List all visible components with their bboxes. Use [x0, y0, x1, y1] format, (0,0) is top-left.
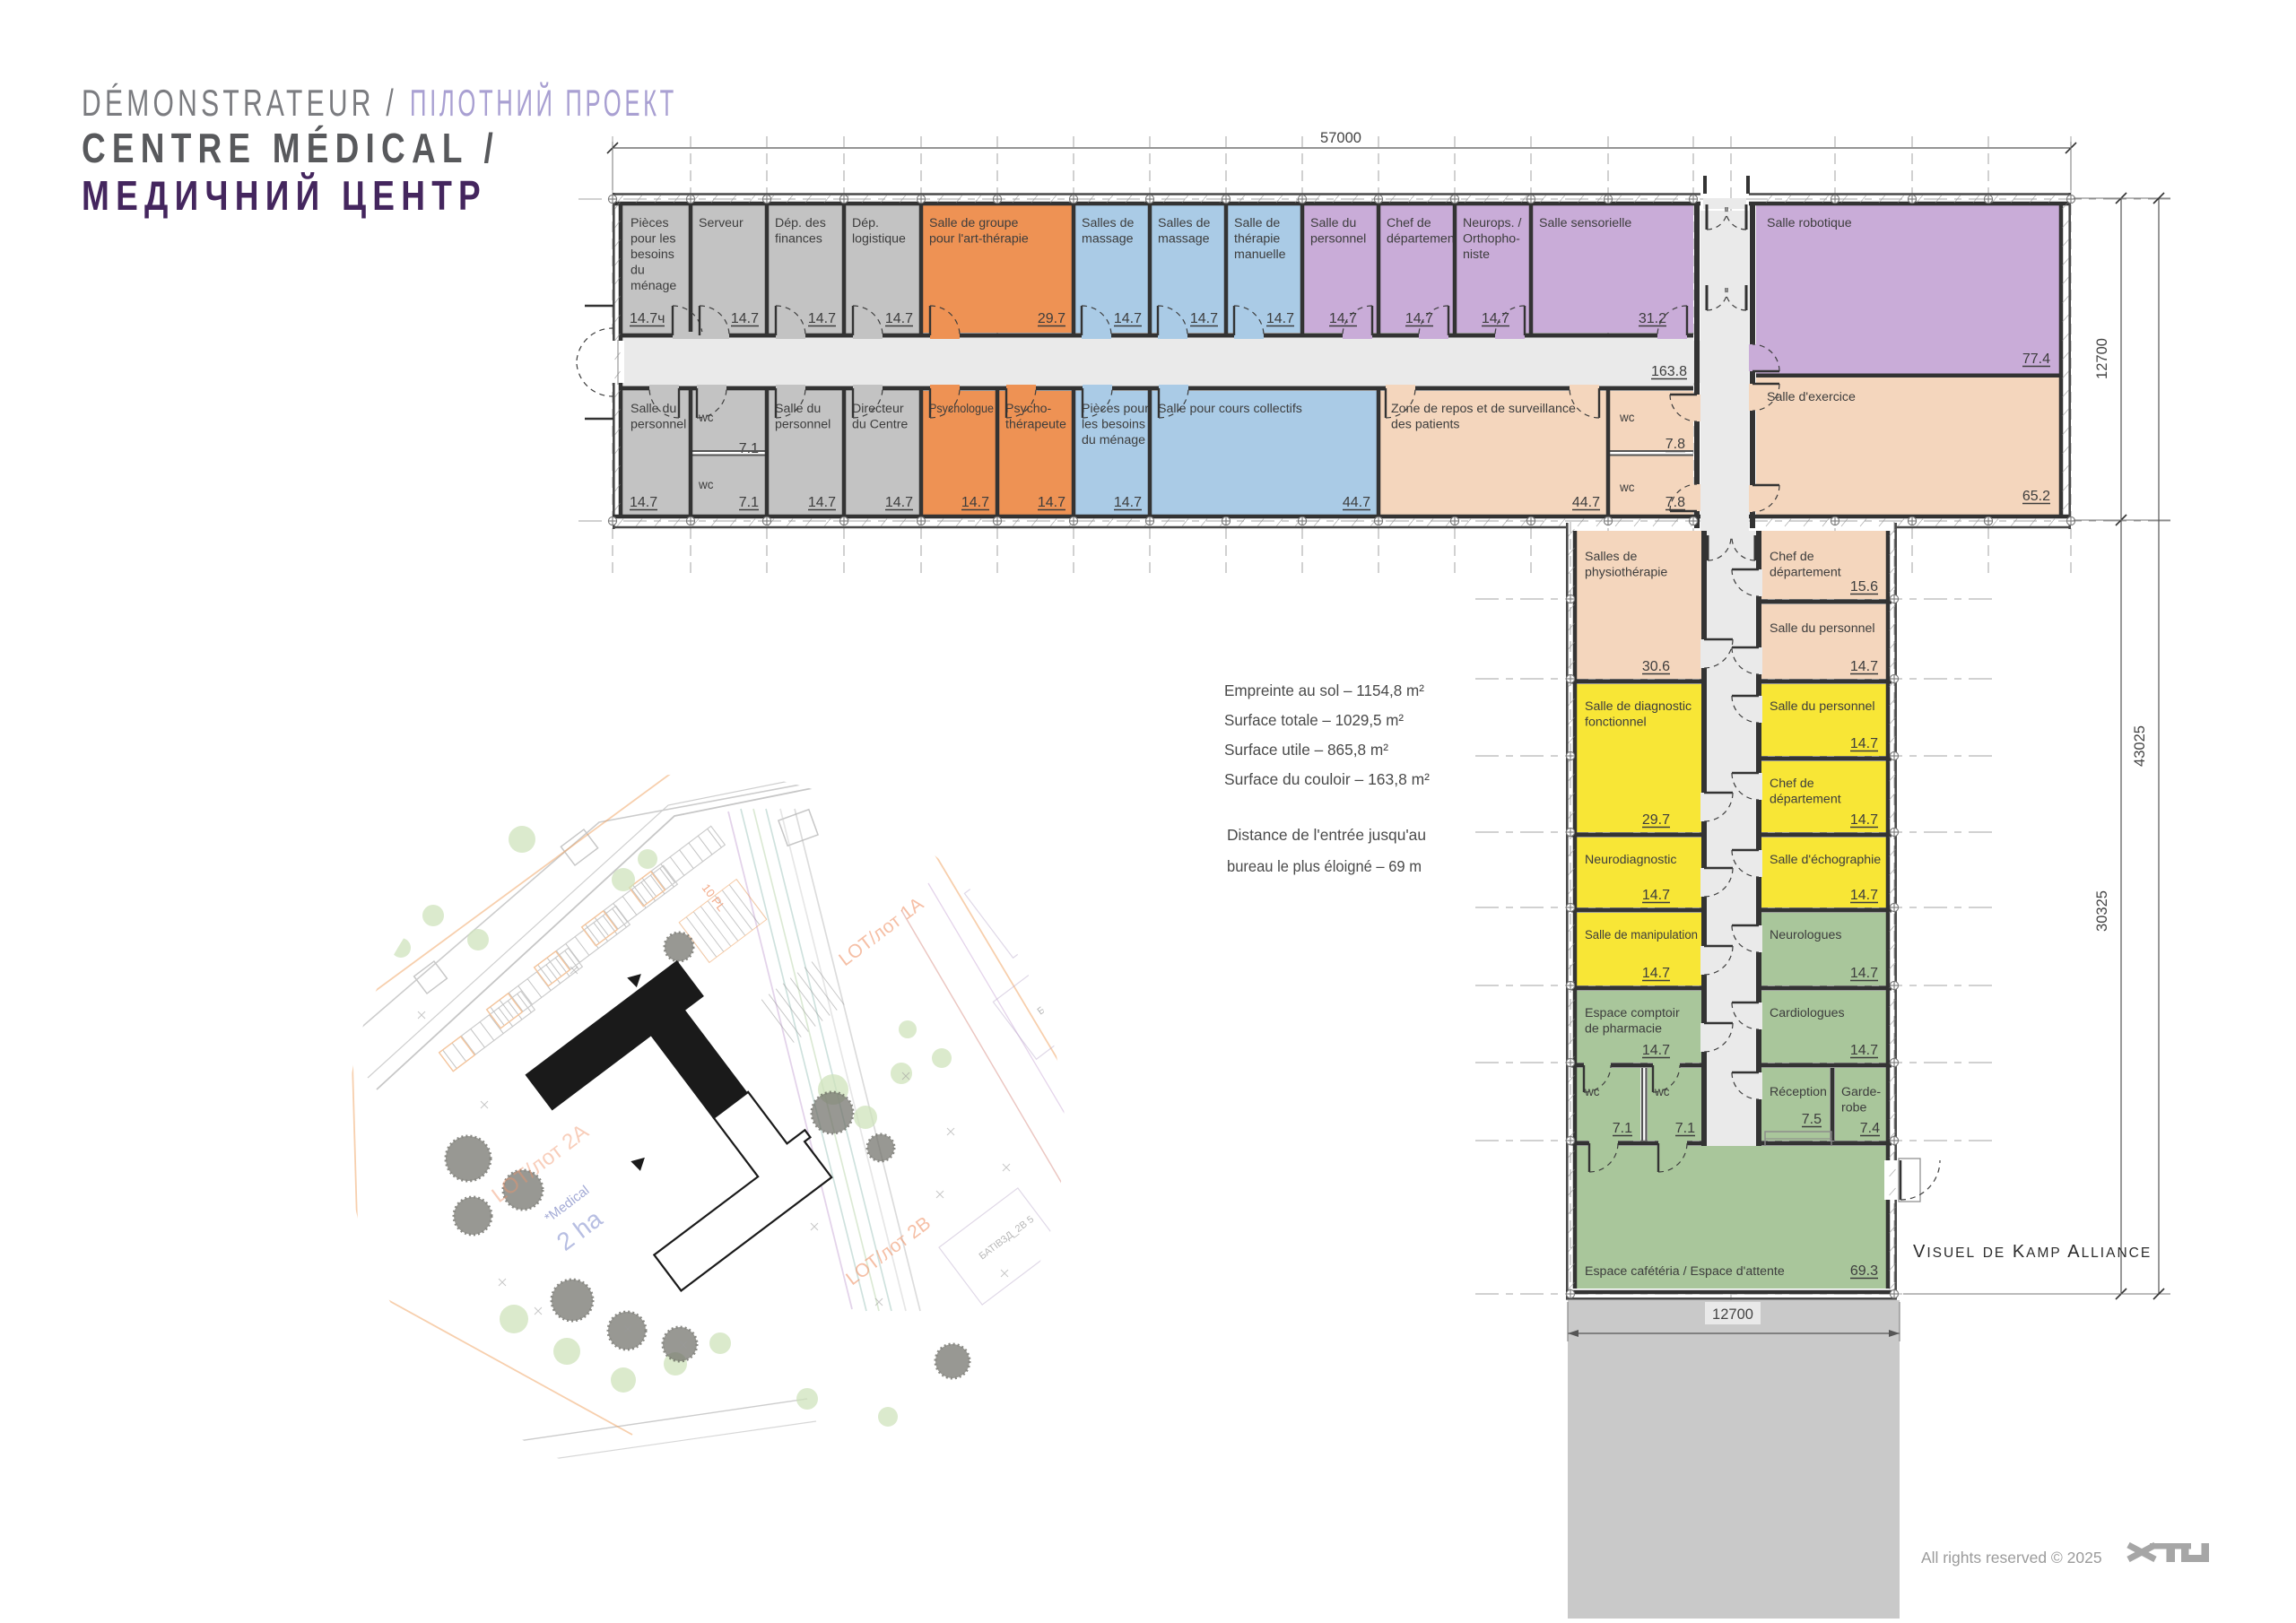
svg-text:7.1: 7.1	[1675, 1121, 1695, 1136]
svg-text:14.7: 14.7	[1642, 888, 1670, 903]
svg-text:Serveur: Serveur	[699, 216, 744, 230]
svg-text:7.1: 7.1	[739, 495, 759, 510]
svg-text:Salle dethérapiemanuelle: Salle dethérapiemanuelle	[1234, 216, 1286, 262]
svg-text:Surface totale – 1029,5 m²: Surface totale – 1029,5 m²	[1224, 711, 1404, 729]
svg-text:31.2: 31.2	[1639, 311, 1666, 326]
svg-text:Salles demassage: Salles demassage	[1158, 216, 1210, 247]
svg-text:69.3: 69.3	[1850, 1263, 1878, 1279]
svg-text:14.7: 14.7	[885, 495, 913, 510]
svg-text:Réception: Réception	[1770, 1085, 1827, 1099]
svg-text:29.7: 29.7	[1038, 311, 1065, 326]
svg-text:14.7: 14.7	[1266, 311, 1294, 326]
svg-text:Surface du couloir – 163,8 m²: Surface du couloir – 163,8 m²	[1224, 770, 1430, 788]
svg-text:7.8: 7.8	[1665, 437, 1685, 452]
svg-text:DÉMONSTRATEUR /: DÉMONSTRATEUR /	[82, 82, 397, 124]
svg-text:14.7: 14.7	[1850, 736, 1878, 751]
svg-text:Empreinte au sol – 1154,8 m²: Empreinte au sol – 1154,8 m²	[1224, 681, 1424, 699]
svg-text:Directeurdu Centre: Directeurdu Centre	[852, 402, 908, 432]
svg-text:30325: 30325	[2094, 890, 2110, 932]
svg-text:7.5: 7.5	[1802, 1112, 1822, 1127]
svg-text:14.7: 14.7	[1190, 311, 1218, 326]
svg-text:65.2: 65.2	[2022, 489, 2050, 504]
svg-text:14.7: 14.7	[1850, 888, 1878, 903]
svg-text:12700: 12700	[1712, 1306, 1753, 1323]
svg-text:МЕДИЧНИЙ ЦЕНТР: МЕДИЧНИЙ ЦЕНТР	[82, 172, 487, 219]
svg-text:wc: wc	[1619, 411, 1635, 424]
svg-text:7.1: 7.1	[1613, 1121, 1632, 1136]
svg-text:14.7: 14.7	[808, 495, 836, 510]
svg-text:7.8: 7.8	[1665, 495, 1685, 510]
svg-text:bureau le plus éloigné – 69 m: bureau le plus éloigné – 69 m	[1227, 857, 1422, 875]
svg-text:CENTRE MÉDICAL /: CENTRE MÉDICAL /	[82, 125, 500, 171]
svg-text:14.7: 14.7	[885, 311, 913, 326]
svg-text:wc: wc	[698, 478, 714, 491]
svg-text:Salle sensorielle: Salle sensorielle	[1539, 216, 1631, 230]
svg-text:43025: 43025	[2132, 725, 2148, 767]
svg-text:Surface utile – 865,8 m²: Surface utile – 865,8 m²	[1224, 741, 1388, 759]
svg-text:VISUEL DE KAMP ALLIANCE: VISUEL DE KAMP ALLIANCE	[1913, 1242, 2152, 1262]
svg-text:Salle de groupepour l'art-thér: Salle de groupepour l'art-thérapie	[929, 216, 1029, 247]
svg-text:44.7: 44.7	[1572, 495, 1600, 510]
svg-text:wc: wc	[1619, 481, 1635, 494]
svg-text:30.6: 30.6	[1642, 659, 1670, 674]
svg-text:ПІЛОТНИЙ ПРОЕКТ: ПІЛОТНИЙ ПРОЕКТ	[410, 81, 677, 124]
svg-text:Pièces pourles besoinsdu ménag: Pièces pourles besoinsdu ménage	[1082, 402, 1149, 447]
svg-text:Psychologue: Psychologue	[929, 402, 994, 416]
svg-text:14.7ч: 14.7ч	[630, 311, 665, 326]
svg-text:14.7: 14.7	[1850, 1043, 1878, 1058]
svg-text:14.7: 14.7	[808, 311, 836, 326]
svg-text:Cardiologues: Cardiologues	[1770, 1006, 1845, 1020]
svg-text:Salle d'échographie: Salle d'échographie	[1770, 853, 1881, 867]
svg-text:Salle robotique: Salle robotique	[1767, 216, 1852, 230]
svg-text:14.7: 14.7	[1850, 966, 1878, 981]
svg-text:14.7: 14.7	[1114, 311, 1142, 326]
svg-text:12700: 12700	[2094, 338, 2110, 379]
svg-text:14.7: 14.7	[1850, 659, 1878, 674]
svg-text:Salle du personnel: Salle du personnel	[1770, 621, 1875, 636]
svg-text:Salle de manipulation: Salle de manipulation	[1585, 928, 1698, 942]
svg-text:Neurologues: Neurologues	[1770, 928, 1841, 942]
svg-text:Salles demassage: Salles demassage	[1082, 216, 1134, 247]
svg-text:14.7: 14.7	[731, 311, 759, 326]
svg-text:44.7: 44.7	[1343, 495, 1370, 510]
svg-text:77.4: 77.4	[2022, 352, 2050, 367]
svg-text:14.7: 14.7	[1038, 495, 1065, 510]
svg-text:14.7: 14.7	[1642, 966, 1670, 981]
svg-text:Espace cafétéria / Espace d'at: Espace cafétéria / Espace d'attente	[1585, 1264, 1785, 1279]
svg-text:7.4: 7.4	[1860, 1121, 1880, 1136]
svg-text:29.7: 29.7	[1642, 812, 1670, 828]
svg-text:14.7: 14.7	[1642, 1043, 1670, 1058]
svg-text:14.7: 14.7	[961, 495, 989, 510]
svg-text:14.7: 14.7	[630, 495, 657, 510]
svg-text:14.7: 14.7	[1850, 812, 1878, 828]
svg-text:Salle d'exercice: Salle d'exercice	[1767, 390, 1856, 404]
svg-text:Dép. desfinances: Dép. desfinances	[775, 216, 826, 247]
svg-text:163.8: 163.8	[1651, 364, 1687, 379]
svg-text:7.1: 7.1	[739, 441, 759, 456]
svg-text:Distance de l'entrée jusqu'au: Distance de l'entrée jusqu'au	[1227, 826, 1426, 844]
svg-text:All rights reserved © 2025: All rights reserved © 2025	[1921, 1549, 2102, 1567]
svg-text:Salle du personnel: Salle du personnel	[1770, 699, 1875, 714]
svg-text:Neurodiagnostic: Neurodiagnostic	[1585, 853, 1677, 867]
svg-text:14.7: 14.7	[1114, 495, 1142, 510]
svg-text:15.6: 15.6	[1850, 579, 1878, 595]
svg-text:57000: 57000	[1320, 130, 1361, 146]
